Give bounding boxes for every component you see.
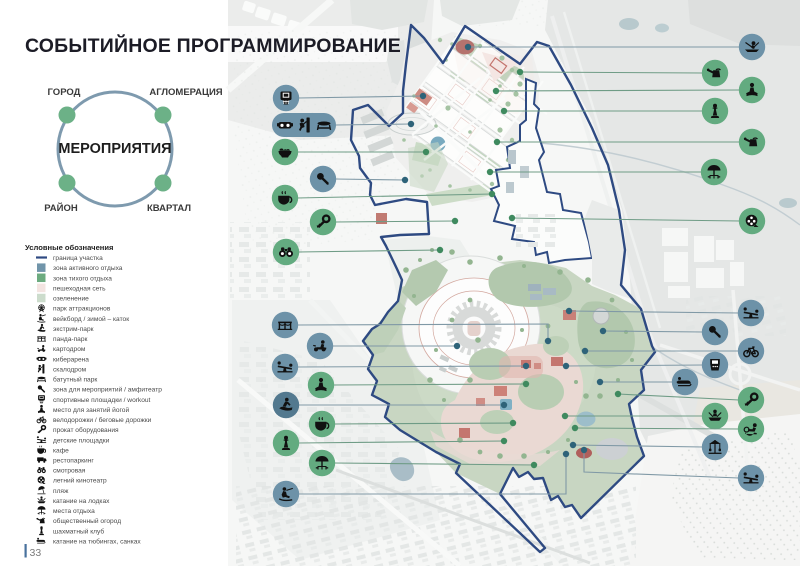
svg-text:озеленение: озеленение	[53, 296, 89, 303]
svg-text:СОБЫТИЙНОЕ ПРОГРАММИРОВАНИЕ: СОБЫТИЙНОЕ ПРОГРАММИРОВАНИЕ	[25, 33, 401, 57]
svg-text:кафе: кафе	[53, 447, 69, 454]
svg-text:рестопаркинг: рестопаркинг	[53, 458, 94, 465]
svg-text:батутный парк: батутный парк	[53, 376, 97, 384]
svg-text:места отдыха: места отдыха	[53, 508, 95, 515]
svg-text:зона активного отдыха: зона активного отдыха	[53, 265, 123, 272]
svg-text:общественный огород: общественный огород	[53, 517, 121, 525]
svg-text:КВАРТАЛ: КВАРТАЛ	[147, 203, 191, 214]
svg-text:Условные обозначения: Условные обозначения	[25, 243, 113, 252]
svg-text:парк аттракционов: парк аттракционов	[53, 306, 111, 313]
svg-text:катание на лодках: катание на лодках	[53, 498, 110, 505]
svg-text:место для занятий йогой: место для занятий йогой	[53, 406, 129, 414]
svg-text:пляж: пляж	[53, 488, 69, 495]
svg-text:шахматный клуб: шахматный клуб	[53, 527, 104, 535]
svg-text:картодром: картодром	[53, 346, 86, 353]
svg-text:пешеходная сеть: пешеходная сеть	[53, 285, 106, 292]
svg-text:АГЛОМЕРАЦИЯ: АГЛОМЕРАЦИЯ	[149, 87, 222, 98]
svg-text:прокат оборудования: прокат оборудования	[53, 426, 119, 434]
svg-text:ГОРОД: ГОРОД	[48, 87, 81, 98]
svg-text:скалодром: скалодром	[53, 366, 87, 373]
svg-text:зона для мероприятий / амфитеа: зона для мероприятий / амфитеатр	[53, 386, 162, 394]
svg-text:вейкборд / зимой – каток: вейкборд / зимой – каток	[53, 315, 129, 323]
svg-text:РАЙОН: РАЙОН	[44, 202, 78, 214]
svg-text:детские площадки: детские площадки	[53, 437, 110, 444]
svg-text:граница участка: граница участка	[53, 255, 103, 262]
svg-text:33: 33	[30, 547, 42, 559]
svg-text:киберарена: киберарена	[53, 355, 89, 363]
svg-text:экстрим-парк: экстрим-парк	[53, 326, 94, 333]
svg-text:велодорожки / беговые дорожки: велодорожки / беговые дорожки	[53, 416, 152, 424]
svg-text:летний кинотеатр: летний кинотеатр	[53, 477, 107, 485]
svg-text:спортивные площадки / workout: спортивные площадки / workout	[53, 397, 151, 404]
svg-text:МЕРОПРИЯТИЯ: МЕРОПРИЯТИЯ	[58, 141, 171, 157]
svg-text:панда-парк: панда-парк	[53, 336, 87, 343]
svg-text:зона тихого отдыха: зона тихого отдыха	[53, 275, 112, 282]
svg-text:смотровая: смотровая	[53, 468, 86, 475]
svg-text:катание на тюбингах, санках: катание на тюбингах, санках	[53, 537, 141, 545]
